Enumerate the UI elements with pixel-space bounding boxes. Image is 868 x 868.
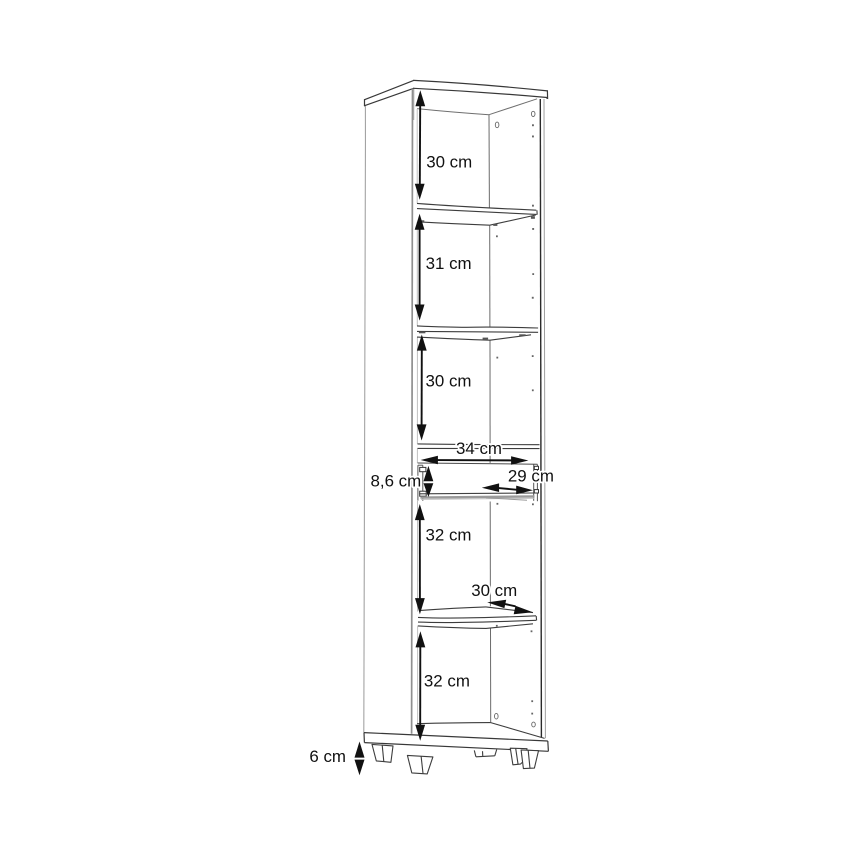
svg-text:29 cm: 29 cm	[508, 466, 554, 485]
svg-text:34 cm: 34 cm	[456, 439, 502, 458]
svg-text:31 cm: 31 cm	[426, 254, 472, 273]
svg-text:30 cm: 30 cm	[426, 371, 472, 390]
svg-text:30 cm: 30 cm	[426, 153, 472, 172]
svg-text:30 cm: 30 cm	[471, 581, 517, 600]
svg-text:8,6 cm: 8,6 cm	[371, 471, 422, 490]
svg-text:32 cm: 32 cm	[424, 672, 470, 691]
svg-text:6 cm: 6 cm	[309, 747, 346, 766]
svg-text:32 cm: 32 cm	[426, 526, 472, 545]
